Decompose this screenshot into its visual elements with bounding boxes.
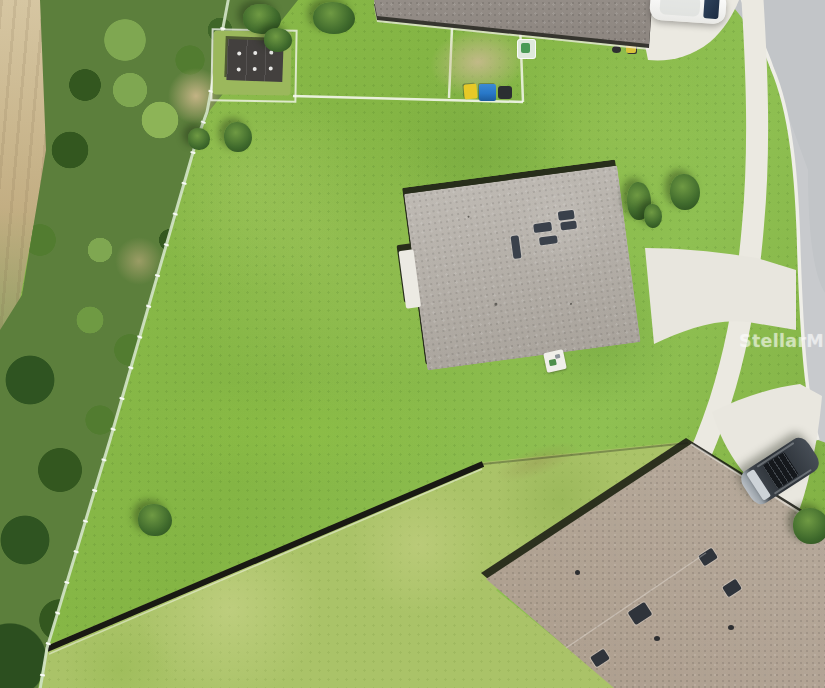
neighbor-ridge — [566, 553, 706, 648]
roof-lines — [0, 0, 825, 688]
aerial-photo: StellarMLS — [0, 0, 825, 688]
roof-speck — [494, 303, 497, 306]
roof-vent — [533, 222, 552, 233]
bush — [264, 28, 292, 52]
bush — [644, 204, 662, 228]
tree — [224, 122, 252, 152]
tree — [138, 504, 172, 536]
tree — [313, 2, 355, 34]
roof-vent — [558, 210, 575, 221]
bush — [188, 128, 210, 150]
utility-pad — [543, 349, 567, 373]
watermark: StellarMLS — [739, 331, 825, 351]
bush — [793, 508, 825, 544]
roof-speck — [570, 303, 572, 305]
windshield — [703, 0, 720, 19]
roof-vent — [511, 235, 522, 259]
tree — [670, 174, 700, 210]
roof-vent — [560, 220, 577, 230]
roof-speck — [467, 216, 469, 218]
roof-vent — [539, 235, 558, 245]
main-house-roof — [404, 166, 641, 371]
